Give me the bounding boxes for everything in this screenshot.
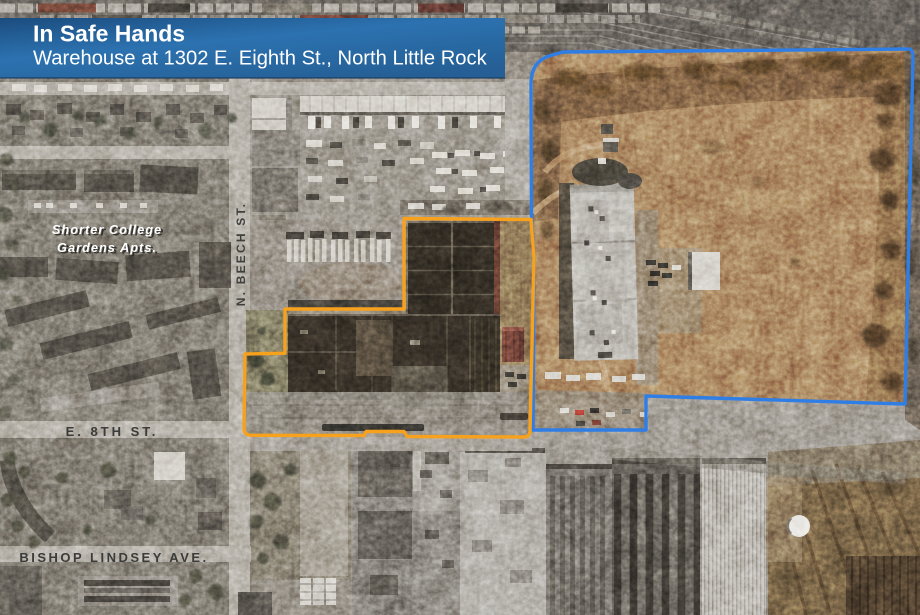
svg-text:BISHOP LINDSEY AVE.: BISHOP LINDSEY AVE. xyxy=(19,550,208,565)
svg-text:In Safe Hands: In Safe Hands xyxy=(33,20,185,46)
svg-text:N. BEECH ST.: N. BEECH ST. xyxy=(234,202,248,306)
svg-text:Gardens Apts.: Gardens Apts. xyxy=(57,240,157,255)
svg-text:Warehouse at 1302 E. Eighth St: Warehouse at 1302 E. Eighth St., North L… xyxy=(33,48,488,70)
svg-text:E. 8TH ST.: E. 8TH ST. xyxy=(66,424,159,439)
svg-text:Shorter College: Shorter College xyxy=(52,222,162,237)
